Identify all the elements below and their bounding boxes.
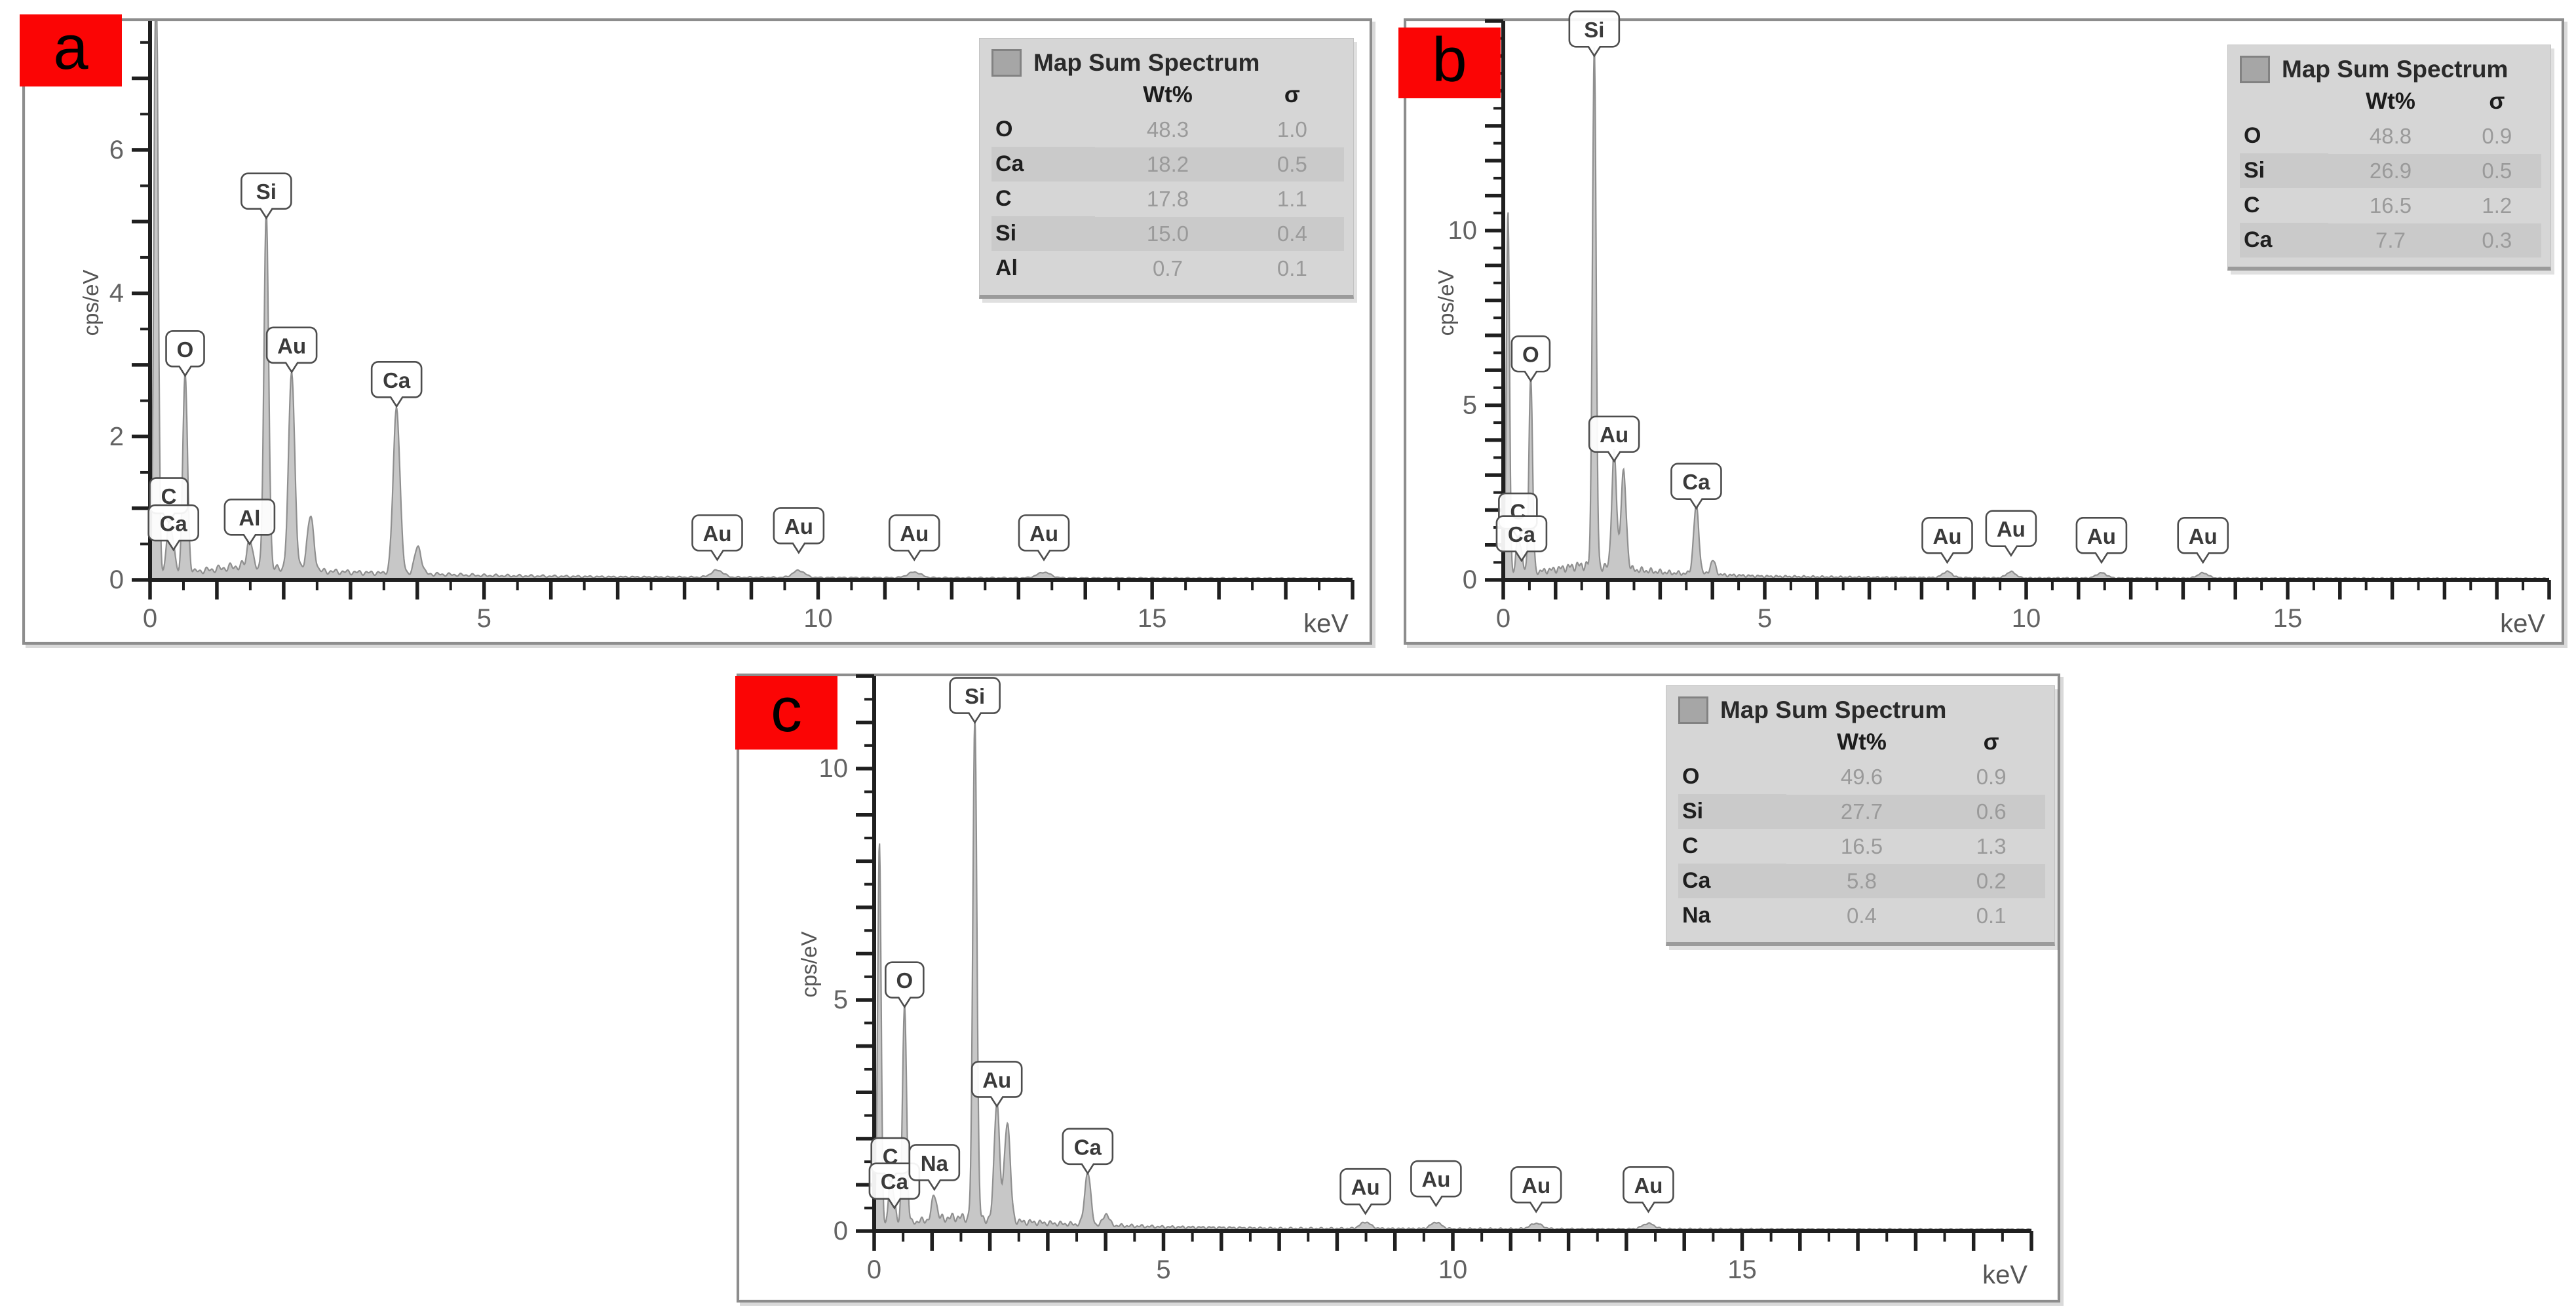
- element-peak-label: Si: [950, 678, 1000, 723]
- legend-swatch-icon: [1678, 696, 1708, 724]
- y-axis-unit-label: cps/eV: [79, 270, 103, 336]
- element-peak-label: Au: [1511, 1167, 1561, 1211]
- legend-wt-value: 27.7: [1786, 795, 1938, 829]
- legend-element: O: [991, 112, 1095, 147]
- legend-table: Wt% σ O48.80.9Si26.90.5C16.51.2Ca7.70.3: [2240, 87, 2541, 257]
- y-axis-tick-label: 4: [109, 279, 124, 308]
- x-axis-tick-label: 10: [803, 604, 833, 633]
- legend-wt-value: 49.6: [1786, 760, 1938, 794]
- legend-element: Si: [2240, 153, 2328, 188]
- panel-label-badge: c: [735, 676, 837, 750]
- legend-wt-value: 18.2: [1095, 147, 1240, 181]
- legend-sigma-value: 0.6: [1937, 795, 2045, 829]
- element-peak-label-text: O: [896, 968, 913, 993]
- element-peak-label-text: Au: [1522, 1173, 1550, 1198]
- element-peak-label: Au: [1411, 1161, 1461, 1206]
- element-peak-label-text: Na: [921, 1151, 949, 1175]
- eds-spectrum-panel-c: 051015keV0510cps/eVCCaONaSiAuCaAuAuAuAu …: [737, 674, 2060, 1303]
- legend-element: Si: [991, 216, 1095, 251]
- legend-swatch-icon: [991, 49, 1022, 77]
- x-axis-tick-label: 10: [2012, 604, 2041, 633]
- element-peak-label: O: [166, 331, 204, 375]
- legend-wt-value: 15.0: [1095, 217, 1240, 251]
- legend-sigma-value: 0.3: [2453, 223, 2541, 257]
- element-peak-label-text: Au: [1600, 423, 1628, 447]
- x-axis-tick-label: 10: [1438, 1255, 1468, 1284]
- x-axis-tick-label: 5: [477, 604, 491, 633]
- legend-sigma-value: 0.2: [1937, 864, 2045, 898]
- x-axis-unit-label: keV: [2500, 609, 2545, 638]
- legend-table: Wt% σ O48.31.0Ca18.20.5C17.81.1Si15.00.4…: [991, 81, 1344, 286]
- element-peak-label-text: Au: [982, 1068, 1011, 1092]
- element-peak-label-text: Au: [1351, 1175, 1380, 1200]
- legend-sigma-value: 1.1: [1240, 182, 1344, 216]
- legend-title: Map Sum Spectrum: [1033, 49, 1259, 77]
- element-peak-label: Ca: [372, 362, 421, 406]
- y-axis-tick-label: 0: [1463, 565, 1477, 594]
- eds-figure-canvas: 051015keV0246cps/eVCCaOAlSiAuCaAuAuAuAu …: [0, 0, 2576, 1313]
- legend-wt-value: 5.8: [1786, 864, 1938, 898]
- legend-table: Wt% σ O49.60.9Si27.70.6C16.51.3Ca5.80.2N…: [1678, 728, 2045, 933]
- legend-sigma-value: 0.9: [1937, 760, 2045, 794]
- panel-label-badge: b: [1398, 28, 1501, 98]
- element-peak-label: Au: [2178, 518, 2228, 562]
- legend-element: Ca: [2240, 223, 2328, 257]
- legend-swatch-icon: [2240, 56, 2270, 83]
- element-peak-label: Au: [774, 508, 824, 552]
- legend-sigma-value: 0.5: [2453, 154, 2541, 188]
- element-peak-label-text: Au: [2087, 524, 2116, 548]
- x-axis-tick-label: 15: [1138, 604, 1167, 633]
- legend-wt-value: 48.3: [1095, 113, 1240, 147]
- element-peak-label-text: Ca: [1074, 1135, 1102, 1159]
- legend-title-row: Map Sum Spectrum: [2240, 56, 2541, 83]
- element-peak-label: Au: [1341, 1169, 1391, 1213]
- panel-letter: c: [771, 679, 802, 742]
- x-axis-tick-label: 0: [143, 604, 157, 633]
- legend-header-wt: Wt%: [2328, 87, 2452, 119]
- legend-sigma-value: 0.5: [1240, 147, 1344, 181]
- legend-wt-value: 0.7: [1095, 252, 1240, 286]
- panel-label-badge: a: [20, 14, 122, 86]
- legend-element: O: [1678, 759, 1786, 794]
- legend-sigma-value: 1.0: [1240, 113, 1344, 147]
- element-peak-label-text: Ca: [383, 368, 411, 392]
- element-peak-label-text: Ca: [160, 512, 188, 536]
- element-peak-label: Au: [1019, 515, 1069, 560]
- legend-header-spacer: [991, 94, 1095, 99]
- element-peak-label-text: Ca: [1682, 470, 1710, 494]
- legend-wt-value: 0.4: [1786, 899, 1938, 933]
- legend-element: C: [1678, 829, 1786, 864]
- x-axis-tick-label: 0: [1496, 604, 1510, 633]
- legend-title: Map Sum Spectrum: [2282, 56, 2508, 83]
- legend-sigma-value: 0.1: [1937, 899, 2045, 933]
- element-peak-label-text: O: [1522, 343, 1539, 367]
- y-axis-tick-label: 0: [834, 1217, 848, 1246]
- legend-title-row: Map Sum Spectrum: [991, 49, 1344, 77]
- legend-box: Map Sum Spectrum Wt% σ O48.31.0Ca18.20.5…: [979, 38, 1354, 299]
- legend-wt-value: 48.8: [2328, 119, 2452, 153]
- x-axis-tick-label: 5: [1758, 604, 1772, 633]
- legend-title: Map Sum Spectrum: [1720, 696, 1946, 724]
- element-peak-label-text: Au: [1933, 524, 1962, 548]
- x-axis-tick-label: 5: [1156, 1255, 1170, 1284]
- legend-header-sigma: σ: [1937, 728, 2045, 759]
- legend-wt-value: 17.8: [1095, 182, 1240, 216]
- element-peak-label: Au: [693, 515, 742, 560]
- legend-header-sigma: σ: [1240, 81, 1344, 112]
- legend-wt-value: 26.9: [2328, 154, 2452, 188]
- y-axis-tick-label: 10: [819, 754, 849, 783]
- element-peak-label: O: [885, 962, 923, 1007]
- legend-wt-value: 16.5: [1786, 829, 1938, 864]
- legend-element: Na: [1678, 898, 1786, 933]
- legend-element: Al: [991, 251, 1095, 286]
- element-peak-label: Ca: [1063, 1129, 1113, 1173]
- eds-spectrum-panel-b: 051015keV0510cps/eVCCaOSiAuCaAuAuAuAu b …: [1404, 18, 2564, 645]
- element-peak-label-text: Au: [277, 333, 306, 358]
- y-axis-tick-label: 5: [834, 985, 848, 1014]
- x-axis-tick-label: 0: [867, 1255, 881, 1284]
- element-peak-label-text: Au: [900, 522, 929, 546]
- element-peak-label: Au: [972, 1061, 1022, 1106]
- element-peak-label-text: O: [177, 337, 194, 362]
- legend-sigma-value: 1.3: [1937, 829, 2045, 864]
- element-peak-label-text: Au: [1421, 1168, 1450, 1192]
- panel-letter: a: [53, 16, 88, 79]
- element-peak-label: Au: [1923, 518, 1972, 562]
- element-peak-label: Au: [889, 515, 939, 560]
- legend-element: O: [2240, 119, 2328, 153]
- y-axis-tick-label: 5: [1463, 390, 1477, 419]
- element-peak-label-text: Au: [1029, 522, 1058, 546]
- legend-wt-value: 16.5: [2328, 189, 2452, 223]
- x-axis-tick-label: 15: [1727, 1255, 1757, 1284]
- legend-header-wt: Wt%: [1786, 728, 1938, 759]
- x-axis-tick-label: 15: [2273, 604, 2303, 633]
- element-peak-label-text: Si: [965, 684, 985, 708]
- element-peak-label: Au: [267, 328, 317, 372]
- legend-sigma-value: 0.9: [2453, 119, 2541, 153]
- x-axis-unit-label: keV: [1982, 1261, 2028, 1289]
- legend-header-spacer: [1678, 741, 1786, 746]
- element-peak-label-text: Au: [703, 522, 732, 546]
- legend-sigma-value: 0.4: [1240, 217, 1344, 251]
- legend-element: C: [991, 181, 1095, 216]
- y-axis-tick-label: 2: [109, 422, 124, 451]
- y-axis-unit-label: cps/eV: [797, 932, 821, 998]
- y-axis-tick-label: 6: [109, 136, 124, 164]
- element-peak-label: Au: [2077, 518, 2126, 562]
- element-peak-label: Au: [1986, 511, 2036, 556]
- legend-header-sigma: σ: [2453, 87, 2541, 119]
- legend-element: Ca: [991, 147, 1095, 181]
- y-axis-unit-label: cps/eV: [1434, 270, 1458, 336]
- eds-spectrum-panel-a: 051015keV0246cps/eVCCaOAlSiAuCaAuAuAuAu …: [22, 18, 1372, 645]
- element-peak-label: Si: [241, 174, 291, 218]
- legend-header-wt: Wt%: [1095, 81, 1240, 112]
- legend-element: Si: [1678, 794, 1786, 829]
- y-axis-tick-label: 10: [1448, 216, 1478, 245]
- element-peak-label-text: Au: [1634, 1173, 1663, 1198]
- legend-element: Ca: [1678, 864, 1786, 898]
- legend-sigma-value: 0.1: [1240, 252, 1344, 286]
- legend-title-row: Map Sum Spectrum: [1678, 696, 2045, 724]
- element-peak-label-text: Ca: [1508, 522, 1536, 546]
- legend-wt-value: 7.7: [2328, 223, 2452, 257]
- element-peak-label-text: Au: [784, 514, 813, 539]
- element-peak-label-text: Si: [256, 180, 277, 204]
- element-peak-label: Ca: [1671, 464, 1721, 508]
- element-peak-label-text: Si: [1584, 18, 1604, 42]
- element-peak-label: Au: [1623, 1167, 1673, 1211]
- legend-box: Map Sum Spectrum Wt% σ O49.60.9Si27.70.6…: [1666, 685, 2055, 946]
- element-peak-label-text: Ca: [881, 1170, 909, 1194]
- y-axis-tick-label: 0: [109, 565, 124, 594]
- element-peak-label: Si: [1569, 11, 1619, 56]
- element-peak-label: O: [1512, 336, 1550, 381]
- legend-box: Map Sum Spectrum Wt% σ O48.80.9Si26.90.5…: [2227, 45, 2551, 271]
- panel-letter: b: [1432, 29, 1467, 92]
- legend-element: C: [2240, 188, 2328, 223]
- element-peak-label-text: Au: [2189, 524, 2218, 548]
- legend-sigma-value: 1.2: [2453, 189, 2541, 223]
- x-axis-unit-label: keV: [1303, 609, 1349, 638]
- legend-header-spacer: [2240, 100, 2328, 105]
- element-peak-label-text: Au: [1997, 517, 2026, 541]
- element-peak-label-text: Al: [239, 506, 260, 530]
